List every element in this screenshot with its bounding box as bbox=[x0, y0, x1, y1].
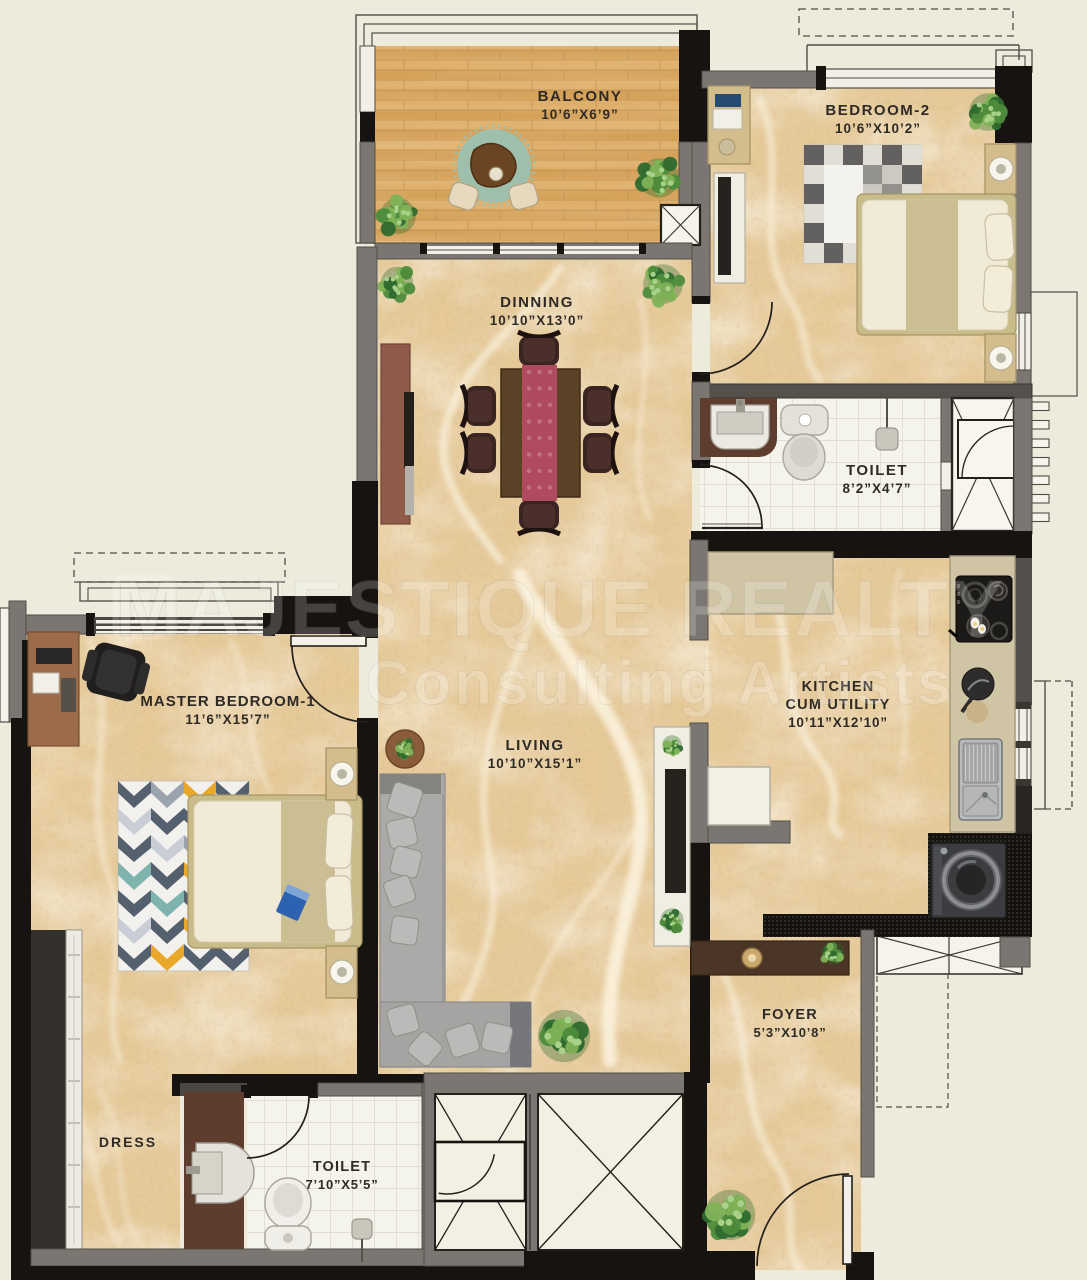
svg-text:10’6”X10’2”: 10’6”X10’2” bbox=[835, 121, 921, 136]
svg-text:Consulting Artists: Consulting Artists bbox=[365, 649, 954, 718]
svg-text:MASTER BEDROOM-1: MASTER BEDROOM-1 bbox=[140, 693, 315, 710]
svg-text:LIVING: LIVING bbox=[505, 737, 564, 754]
svg-text:FOYER: FOYER bbox=[762, 1007, 818, 1023]
svg-text:TOILET: TOILET bbox=[313, 1159, 372, 1175]
svg-text:7’10”X5’5”: 7’10”X5’5” bbox=[305, 1177, 378, 1192]
svg-text:DINNING: DINNING bbox=[500, 294, 574, 311]
svg-text:BALCONY: BALCONY bbox=[538, 88, 623, 105]
svg-text:5’3”X10’8”: 5’3”X10’8” bbox=[753, 1025, 826, 1040]
svg-text:10’10”X13’0”: 10’10”X13’0” bbox=[490, 313, 585, 328]
svg-text:8’2”X4’7”: 8’2”X4’7” bbox=[842, 481, 911, 496]
svg-text:BEDROOM-2: BEDROOM-2 bbox=[825, 102, 930, 119]
svg-text:MAJESTIQUE REALTY: MAJESTIQUE REALTY bbox=[115, 564, 1005, 653]
svg-text:DRESS: DRESS bbox=[99, 1134, 157, 1150]
svg-text:11’6”X15’7”: 11’6”X15’7” bbox=[185, 712, 270, 727]
svg-text:10’6”X6’9”: 10’6”X6’9” bbox=[541, 107, 619, 122]
svg-text:TOILET: TOILET bbox=[846, 462, 908, 479]
svg-text:10’10”X15’1”: 10’10”X15’1” bbox=[488, 756, 583, 771]
